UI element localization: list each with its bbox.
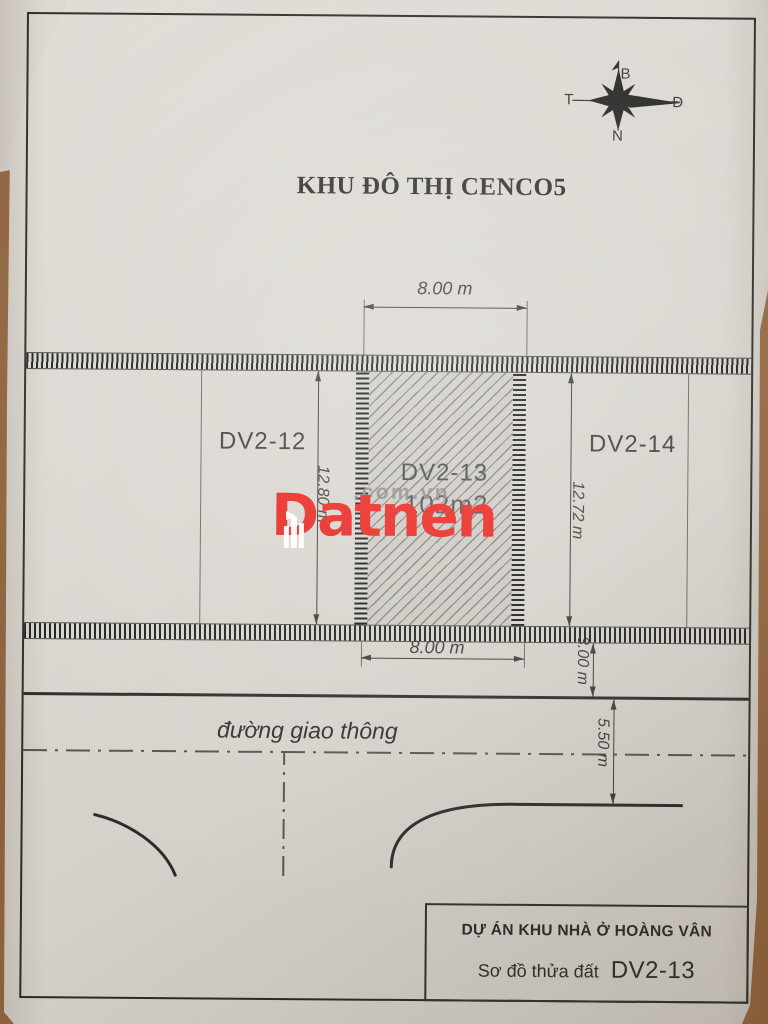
watermark-building-icon — [283, 508, 309, 550]
corner-curve-left — [94, 815, 175, 876]
corner-curve-right — [391, 803, 519, 868]
drawing-frame: B T Đ N KHU ĐÔ THỊ CENCO5 8.00 m 12.80 m… — [19, 12, 756, 1004]
photo-scene: B T Đ N KHU ĐÔ THỊ CENCO5 8.00 m 12.80 m… — [0, 0, 768, 1024]
